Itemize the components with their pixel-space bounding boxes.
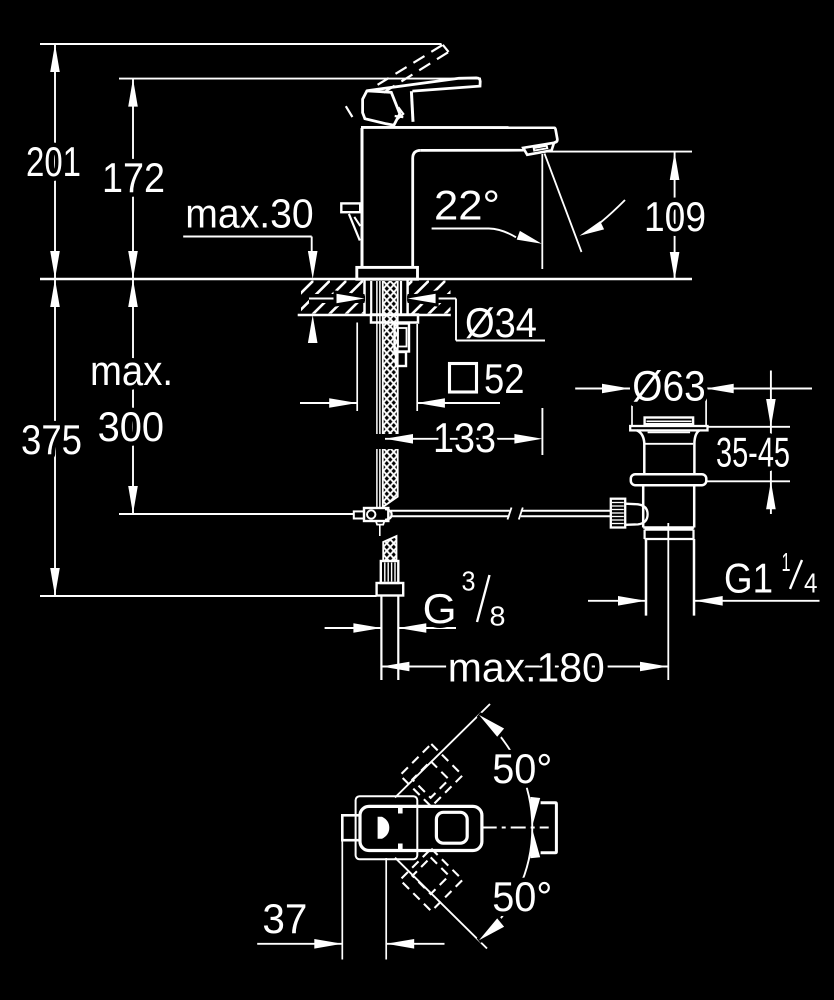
svg-text:22°: 22° (434, 182, 500, 229)
svg-text:1: 1 (782, 547, 791, 577)
svg-text:300: 300 (98, 403, 165, 450)
svg-text:172: 172 (102, 154, 165, 201)
svg-text:4: 4 (804, 568, 818, 599)
svg-text:35-45: 35-45 (716, 429, 790, 476)
svg-text:Ø63: Ø63 (632, 363, 705, 411)
svg-text:3: 3 (462, 566, 476, 597)
svg-text:37: 37 (262, 895, 307, 942)
svg-text:G1: G1 (724, 555, 773, 602)
svg-text:max.30: max.30 (185, 191, 313, 237)
svg-text:50°: 50° (492, 745, 552, 792)
svg-text:109: 109 (644, 193, 706, 240)
svg-text:Ø34: Ø34 (465, 299, 537, 346)
svg-text:50°: 50° (492, 873, 552, 920)
svg-text:max.: max. (90, 347, 173, 394)
svg-text:375: 375 (21, 416, 82, 463)
svg-text:max.180: max.180 (448, 645, 605, 691)
svg-text:201: 201 (26, 138, 81, 185)
svg-text:8: 8 (490, 601, 506, 632)
svg-text:52: 52 (484, 355, 524, 402)
svg-text:133: 133 (433, 414, 496, 461)
svg-text:G: G (423, 585, 457, 632)
